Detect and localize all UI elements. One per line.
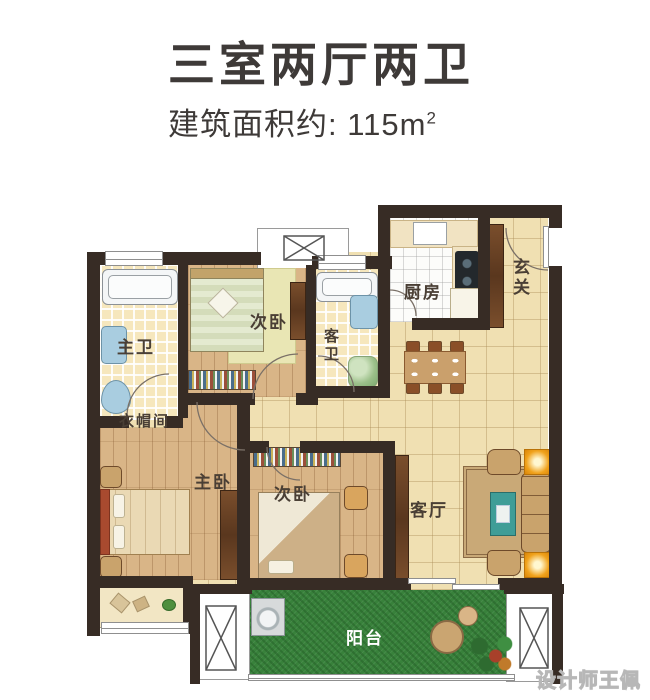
wardrobe-top-bedroom (290, 282, 306, 340)
bed-master-pillow (113, 494, 125, 518)
kitchen-stove (455, 251, 479, 293)
label-balcony: 阳台 (346, 624, 384, 649)
nightstand-bottom (344, 554, 368, 578)
wall (383, 441, 395, 590)
balcony-stool (458, 606, 478, 626)
wall (312, 386, 390, 398)
wall (245, 578, 385, 590)
wall (237, 441, 269, 453)
balcony-slider-door (408, 578, 456, 584)
label-master-bath: 主卫 (117, 333, 155, 358)
washing-machine (251, 598, 285, 636)
nightstand-master (100, 466, 122, 488)
page-title: 三室两厅两卫 (168, 26, 474, 95)
wall (412, 318, 490, 330)
plant-guest-bath (348, 356, 378, 388)
kitchen-sink (413, 222, 447, 245)
ac-shaft-left (192, 588, 250, 680)
sink-master (101, 380, 131, 414)
wall (549, 264, 562, 592)
balcony-plants (468, 634, 514, 674)
dining-chair (450, 383, 464, 394)
designer-watermark: 设计师王佩 (536, 664, 641, 693)
wall (306, 265, 316, 396)
wall (87, 576, 193, 588)
nightstand-bottom (344, 486, 368, 510)
side-table-orange (524, 552, 551, 578)
armchair-top (487, 449, 521, 475)
window-guest-bath (318, 255, 366, 270)
sofa (521, 473, 551, 553)
wall (190, 584, 200, 684)
side-table-orange (524, 449, 551, 475)
label-bedroom-bottom: 次卧 (274, 480, 312, 505)
floorplan-page: 三室两厅两卫 建筑面积约: 115m2 (0, 0, 650, 700)
balcony-table (430, 620, 464, 654)
wall (237, 396, 250, 588)
armchair-bottom (487, 550, 521, 576)
wardrobe-master (220, 490, 238, 580)
toilet-guest (350, 295, 378, 329)
coffee-table-tray (496, 505, 510, 523)
nightstand-master (100, 556, 122, 578)
area-superscript: 2 (426, 109, 436, 128)
dining-table (404, 351, 466, 384)
dining-chair (406, 383, 420, 394)
area-text: 建筑面积约: 115m (168, 107, 426, 142)
label-master-bedroom: 主卧 (194, 468, 232, 493)
bed-bottom-pillow (268, 560, 294, 574)
kitchen-fridge (450, 288, 480, 320)
plan-element (322, 278, 372, 296)
bed-top-headboard (190, 268, 264, 279)
dining-chair (428, 383, 442, 394)
bathtub-master (102, 269, 178, 305)
label-living-room: 客厅 (410, 496, 448, 521)
bay-window (101, 622, 189, 634)
bookshelf-top (188, 370, 256, 390)
wall (183, 252, 261, 265)
balcony-railing (248, 674, 515, 681)
label-guest-bath: 客卫 (320, 328, 341, 364)
bed-master-pillow (113, 525, 125, 549)
label-cloakroom: 衣帽间 (119, 410, 170, 431)
wall (378, 218, 390, 398)
bed-master-headboard (100, 489, 110, 555)
tv-cabinet (395, 455, 409, 583)
bay-decor-plant (162, 599, 176, 611)
wall (478, 218, 490, 328)
main-door-leaf (543, 226, 549, 268)
label-entry: 玄关 (507, 258, 532, 298)
plan-element (108, 275, 172, 299)
wall (300, 441, 395, 453)
area-subtitle: 建筑面积约: 115m2 (168, 99, 437, 144)
balcony-slider-door (452, 584, 500, 590)
window-master-bath (105, 251, 163, 266)
main-door-opening (549, 228, 562, 266)
wall (378, 205, 492, 218)
label-kitchen: 厨房 (404, 278, 442, 303)
label-bedroom-top: 次卧 (250, 308, 288, 333)
wall (383, 578, 411, 590)
